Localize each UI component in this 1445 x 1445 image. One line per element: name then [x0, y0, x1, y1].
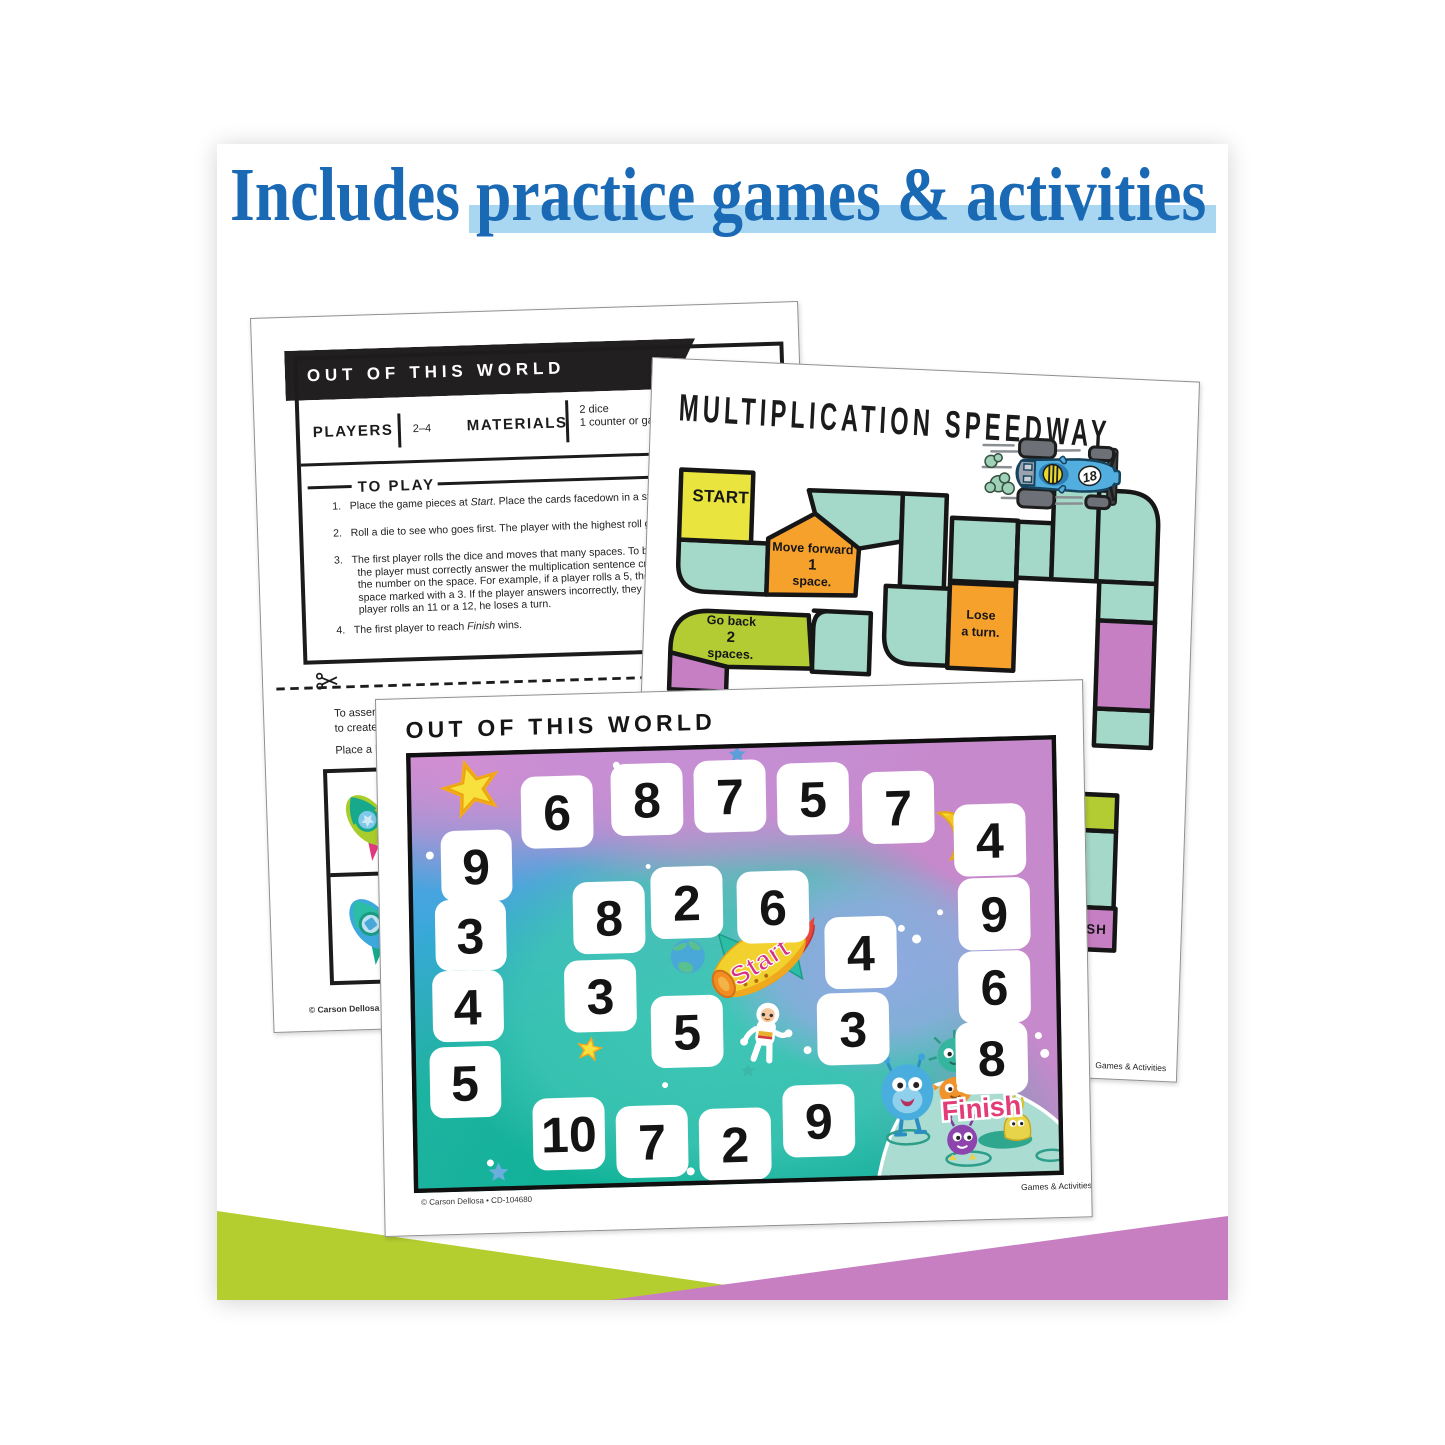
svg-text:5: 5 — [799, 771, 828, 828]
svg-text:6: 6 — [980, 959, 1009, 1016]
svg-text:2: 2 — [726, 629, 735, 646]
svg-text:3: 3 — [456, 908, 485, 965]
svg-text:Finish: Finish — [941, 1090, 1022, 1126]
svg-text:10: 10 — [541, 1106, 598, 1164]
svg-text:8: 8 — [595, 890, 624, 947]
svg-text:9: 9 — [980, 886, 1009, 943]
svg-text:Lose: Lose — [966, 608, 996, 623]
svg-text:1: 1 — [808, 556, 817, 573]
svg-text:space.: space. — [792, 574, 831, 590]
svg-text:3: 3 — [839, 1001, 868, 1058]
svg-text:Go back: Go back — [707, 613, 757, 629]
svg-text:START: START — [692, 486, 749, 508]
svg-text:2: 2 — [672, 875, 701, 932]
svg-text:8: 8 — [633, 772, 662, 829]
svg-text:spaces.: spaces. — [707, 646, 753, 662]
svg-text:2: 2 — [721, 1117, 750, 1174]
svg-text:a turn.: a turn. — [961, 624, 1000, 640]
svg-text:8: 8 — [977, 1031, 1006, 1088]
svg-text:5: 5 — [451, 1055, 480, 1112]
svg-text:4: 4 — [453, 979, 482, 1036]
svg-text:3: 3 — [586, 968, 615, 1025]
svg-text:7: 7 — [884, 780, 913, 837]
svg-text:9: 9 — [462, 839, 491, 896]
svg-text:5: 5 — [673, 1004, 702, 1061]
svg-text:7: 7 — [638, 1114, 667, 1171]
svg-text:4: 4 — [975, 812, 1004, 869]
svg-text:4: 4 — [846, 925, 875, 982]
svg-text:6: 6 — [759, 880, 788, 937]
svg-text:9: 9 — [804, 1093, 833, 1150]
svg-text:7: 7 — [716, 769, 745, 826]
svg-text:6: 6 — [543, 785, 572, 842]
